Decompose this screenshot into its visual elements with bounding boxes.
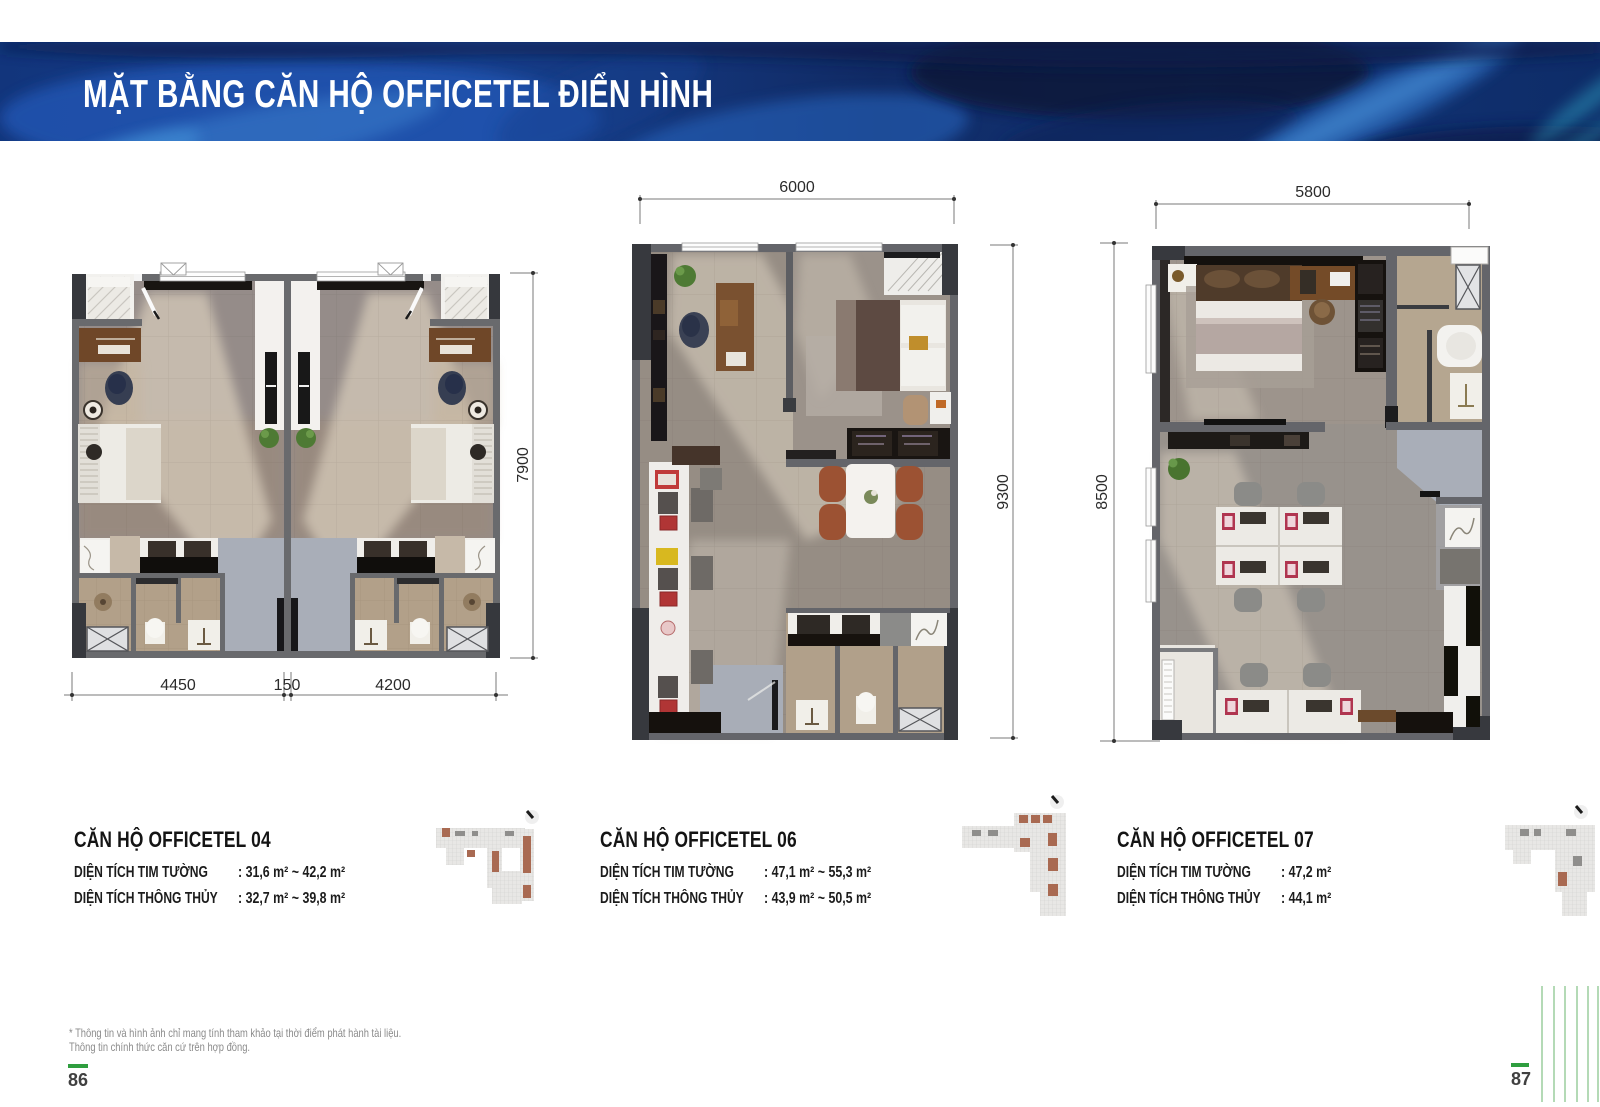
svg-text:150: 150 — [274, 677, 301, 694]
svg-text:8500: 8500 — [1094, 474, 1111, 510]
svg-text:9300: 9300 — [995, 474, 1012, 510]
svg-text:7900: 7900 — [515, 447, 532, 483]
svg-text:6000: 6000 — [779, 179, 815, 196]
svg-text:4450: 4450 — [160, 677, 196, 694]
svg-text:4200: 4200 — [375, 677, 411, 694]
svg-text:5800: 5800 — [1295, 184, 1331, 201]
